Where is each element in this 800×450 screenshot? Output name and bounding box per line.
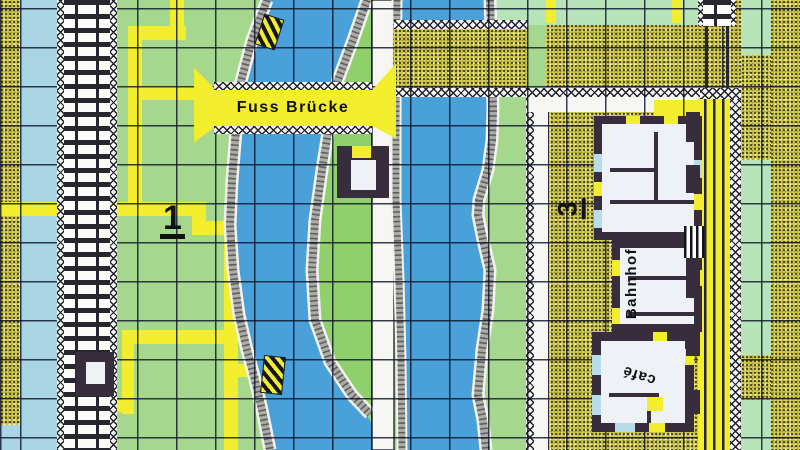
platform-block (686, 112, 700, 142)
city-game-map: Fuss Brücke (0, 0, 800, 450)
door (664, 116, 678, 124)
footbridge-deck: Fuss Brücke (214, 90, 372, 126)
station-road-edge (730, 98, 741, 450)
island-tower-floor (351, 160, 376, 190)
zone-marker-3: 3 (550, 186, 592, 232)
window (592, 355, 601, 375)
cafe-label: café (620, 362, 658, 389)
door (694, 194, 702, 210)
island-tower-door (352, 146, 371, 158)
window (594, 210, 602, 228)
signal-hut-floor (86, 362, 105, 384)
footbridge-rail (214, 126, 372, 134)
zone-3-label: 3 (556, 198, 586, 219)
window (594, 154, 602, 172)
door (649, 423, 665, 432)
railway-northeast (698, 0, 736, 26)
footbridge-rail (214, 82, 372, 90)
door (626, 116, 640, 124)
railway-track (703, 0, 731, 26)
station-road (698, 98, 730, 450)
river-stairs (260, 355, 286, 395)
door (594, 182, 602, 196)
quay-edge (700, 88, 741, 99)
window (615, 423, 635, 432)
station-label: Bahnhof (623, 247, 640, 318)
station-label-wrap: Bahnhof (594, 236, 670, 330)
platform-block (686, 165, 700, 193)
door (653, 332, 667, 341)
railway-edge (57, 0, 64, 450)
zone-marker-1: 1 (160, 202, 185, 239)
cafe-label-wrap: café (606, 350, 672, 400)
platform-block (686, 390, 700, 414)
platform-block (686, 330, 700, 356)
footbridge-label: Fuss Brücke (237, 99, 350, 117)
window (592, 395, 601, 415)
partition (610, 200, 702, 204)
zone-1-label: 1 (160, 202, 185, 239)
platform-steps (684, 226, 704, 258)
railway-edge (731, 0, 736, 26)
partition (610, 168, 658, 172)
